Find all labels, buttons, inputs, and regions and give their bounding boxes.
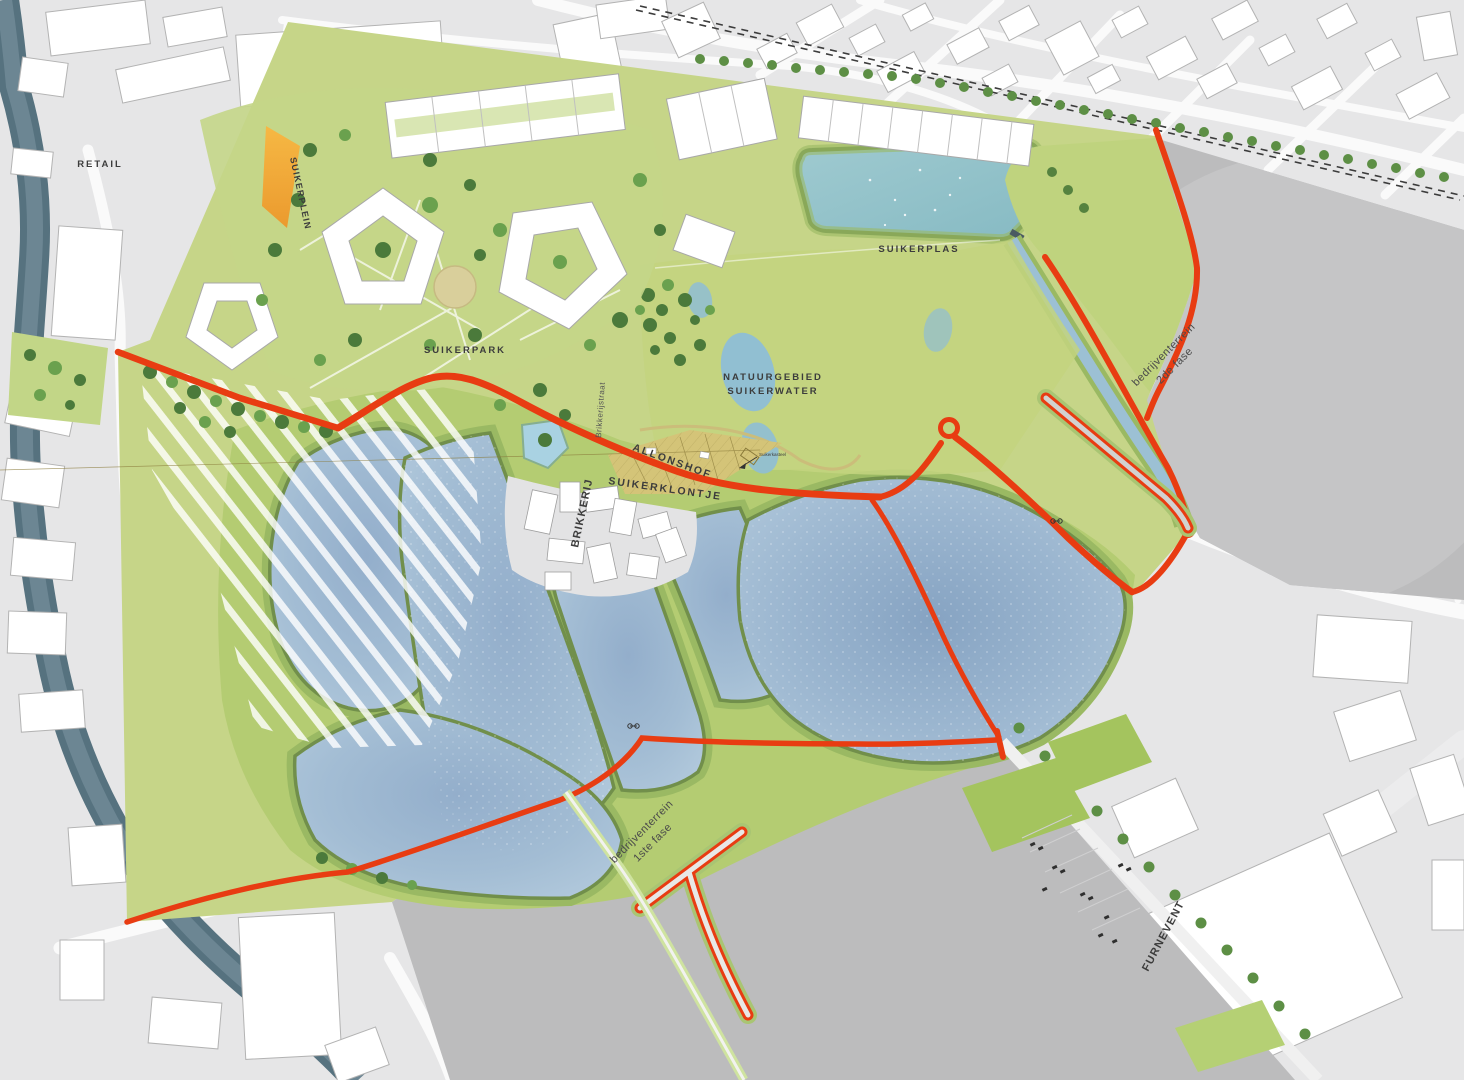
label-annotation: Suikerkasteel — [759, 452, 786, 457]
label-suikerpark: SUIKERPARK — [424, 345, 506, 356]
label-retail: RETAIL — [77, 159, 123, 170]
plaza-circle — [434, 266, 476, 308]
masterplan-map: RETAIL SUIKERPLEIN SUIKERPARK SUIKERPLAS… — [0, 0, 1464, 1080]
label-natuurgebied-2: SUIKERWATER — [727, 386, 818, 397]
label-suikerplas: SUIKERPLAS — [878, 244, 959, 255]
left-green-park — [8, 332, 108, 425]
masterplan-svg: RETAIL SUIKERPLEIN SUIKERPARK SUIKERPLAS… — [0, 0, 1464, 1080]
label-natuurgebied-1: NATUURGEBIED — [723, 372, 823, 383]
